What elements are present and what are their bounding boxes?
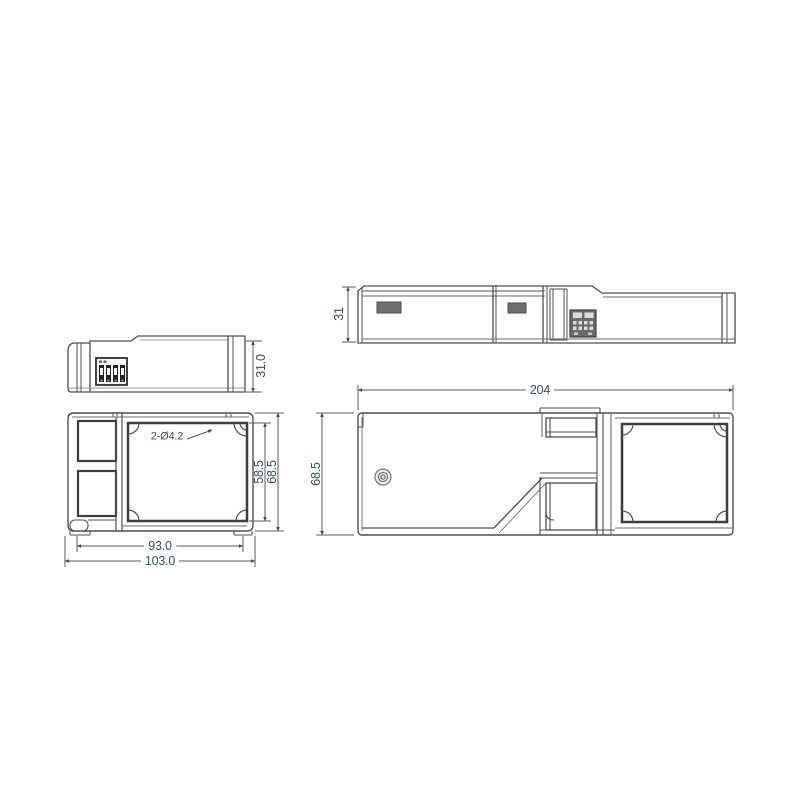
dip-switch-icon [96, 358, 127, 385]
dim-label-front-small-inner-height: 58.5 [253, 460, 266, 484]
dim-label-side-large-height: 31 [333, 307, 346, 321]
side-view-small [68, 336, 262, 392]
front-view-large [316, 385, 733, 535]
hole-callout-label: 2-Ø4.2 [151, 432, 183, 443]
dim-label-front-large-outer-height: 68.5 [310, 462, 323, 486]
dim-label-front-small-outer-width: 103.0 [141, 555, 179, 568]
vent-slot-2 [508, 303, 526, 313]
side-view-large [342, 286, 735, 343]
dim-label-front-small-outer-height: 68.5 [266, 460, 279, 484]
dim-label-front-small-inner-width: 93.0 [144, 540, 176, 553]
drawing-lineart [0, 0, 800, 800]
hole-callout-leader [187, 430, 212, 439]
screw-icon [375, 469, 391, 485]
vent-slot-1 [377, 302, 401, 313]
dim-label-side-small-height: 31.0 [255, 354, 268, 378]
drawing-canvas: 31.0 31 2-Ø4.2 58.5 68.5 93.0 103.0 204 … [0, 0, 800, 800]
dim-front-large [316, 385, 733, 535]
dim-label-front-large-length: 204 [526, 384, 554, 397]
connector-icon [570, 310, 596, 337]
